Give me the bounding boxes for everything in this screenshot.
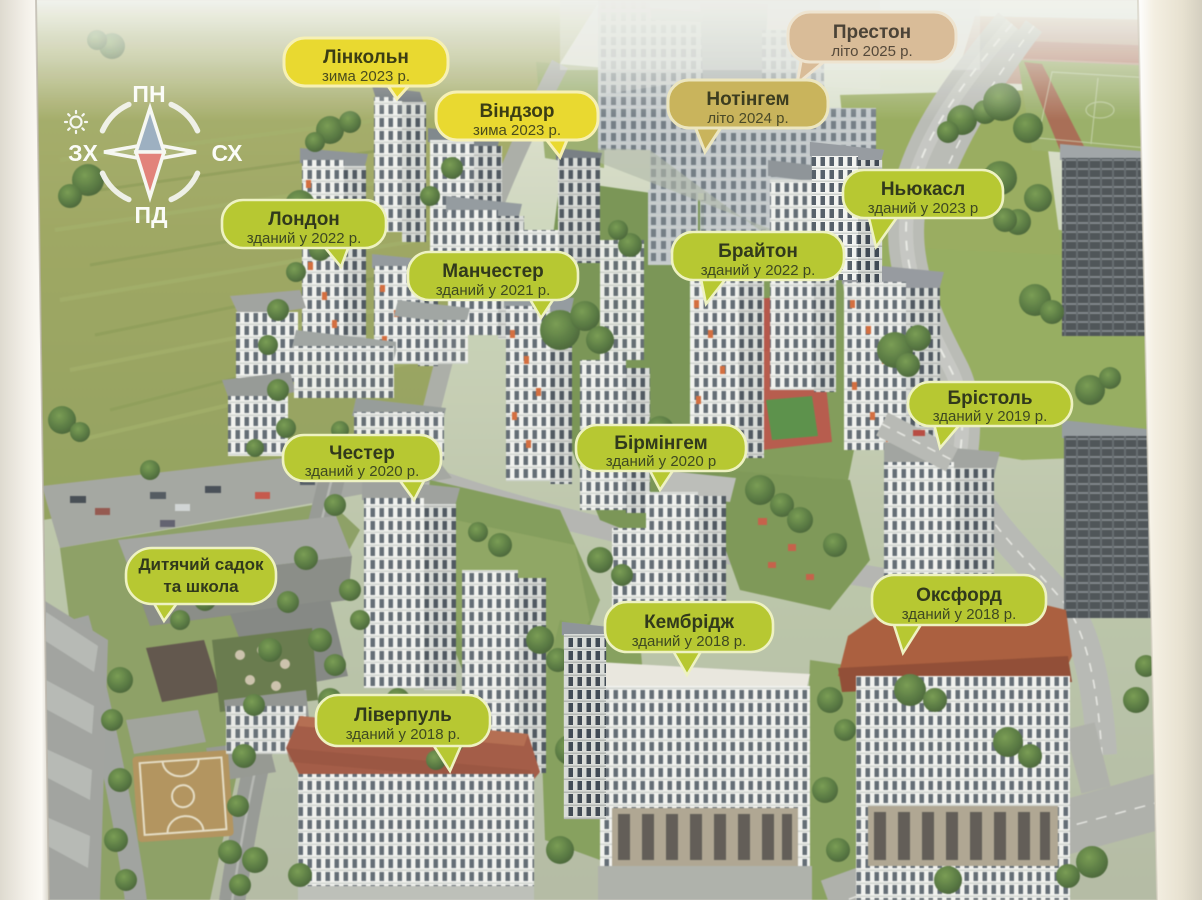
svg-text:СХ: СХ [211,140,243,166]
svg-text:літо 2024 р.: літо 2024 р. [707,110,788,127]
svg-text:та школа: та школа [163,577,239,596]
svg-text:зданий у 2021 р.: зданий у 2021 р. [436,282,551,299]
svg-text:Брайтон: Брайтон [718,241,798,262]
svg-text:ЗХ: ЗХ [68,140,98,166]
svg-text:Лінкольн: Лінкольн [323,47,409,68]
svg-text:Кембрідж: Кембрідж [644,612,734,633]
svg-text:Дитячий садок: Дитячий садок [138,555,264,574]
svg-text:Престон: Престон [833,22,911,43]
svg-text:зданий у 2020 р.: зданий у 2020 р. [305,463,420,480]
svg-text:зданий у 2022 р.: зданий у 2022 р. [247,230,362,247]
svg-text:Честер: Честер [329,443,395,464]
svg-text:зданий у 2018 р.: зданий у 2018 р. [346,726,461,743]
svg-text:зима 2023 р.: зима 2023 р. [473,122,561,139]
svg-text:зданий у 2023 р: зданий у 2023 р [868,200,978,217]
svg-text:Ліверпуль: Ліверпуль [354,705,452,726]
svg-text:Оксфорд: Оксфорд [916,585,1002,606]
svg-text:зданий у 2022 р.: зданий у 2022 р. [701,262,816,279]
svg-text:Манчестер: Манчестер [442,261,544,282]
svg-text:ПД: ПД [135,202,168,228]
svg-text:зданий у 2019 р.: зданий у 2019 р. [933,408,1048,425]
svg-text:літо 2025 р.: літо 2025 р. [831,43,912,60]
svg-text:ПН: ПН [132,81,165,107]
svg-text:зданий у 2018 р.: зданий у 2018 р. [902,606,1017,623]
svg-text:Віндзор: Віндзор [480,101,555,122]
svg-text:Брістоль: Брістоль [947,388,1032,409]
svg-text:Ньюкасл: Ньюкасл [881,179,965,200]
svg-text:зданий у 2020 р: зданий у 2020 р [606,453,716,470]
svg-text:зима 2023 р.: зима 2023 р. [322,68,410,85]
svg-text:Нотінгем: Нотінгем [706,89,789,110]
svg-text:Лондон: Лондон [268,209,340,230]
svg-text:Бірмінгем: Бірмінгем [614,433,707,454]
svg-text:зданий у 2018 р.: зданий у 2018 р. [632,633,747,650]
